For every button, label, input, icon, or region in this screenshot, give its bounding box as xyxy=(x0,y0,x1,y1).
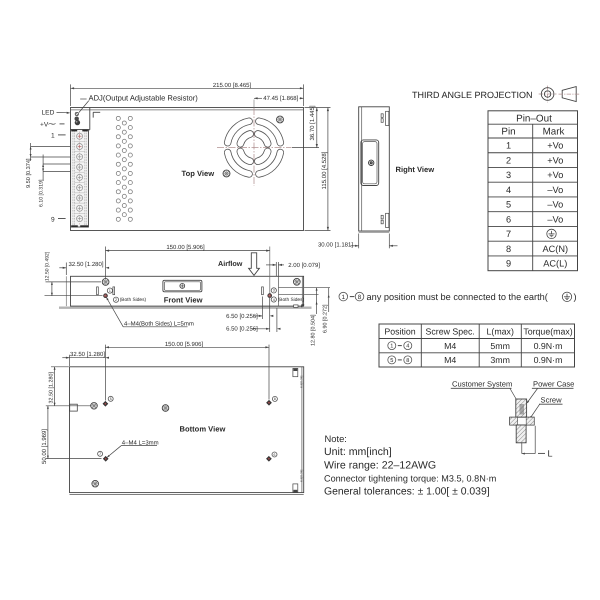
svg-text:6: 6 xyxy=(274,453,276,457)
svg-text:6: 6 xyxy=(506,214,511,224)
svg-text:1: 1 xyxy=(109,289,111,293)
svg-text:6.5[0.26]: 6.5[0.26] xyxy=(300,375,304,388)
svg-text:Customer System: Customer System xyxy=(452,380,512,389)
svg-text:4: 4 xyxy=(406,344,409,350)
svg-text:–Vo: –Vo xyxy=(547,200,563,210)
svg-text:L: L xyxy=(548,449,553,459)
svg-text:9: 9 xyxy=(506,259,511,269)
svg-text:32.50 [1.280]: 32.50 [1.280] xyxy=(70,351,105,358)
svg-text:9.50 [0.374]: 9.50 [0.374] xyxy=(25,158,32,188)
svg-text:+V: +V xyxy=(40,121,49,128)
svg-text:4: 4 xyxy=(506,185,511,195)
svg-text:Pin: Pin xyxy=(501,127,515,138)
svg-text:Screw: Screw xyxy=(541,396,563,405)
svg-text:L(max): L(max) xyxy=(487,327,514,337)
svg-text:THIRD ANGLE PROJECTION: THIRD ANGLE PROJECTION xyxy=(412,90,533,100)
svg-text:50.00 [1.969]: 50.00 [1.969] xyxy=(41,429,48,464)
svg-text:1: 1 xyxy=(342,294,346,301)
svg-text:150.00 [5.906]: 150.00 [5.906] xyxy=(165,341,204,348)
svg-text:2: 2 xyxy=(506,155,511,165)
svg-text:32.50 [1.280]: 32.50 [1.280] xyxy=(49,372,55,404)
svg-text:5: 5 xyxy=(110,397,112,401)
svg-text:47.45 [1.868]: 47.45 [1.868] xyxy=(263,95,298,102)
svg-text:7: 7 xyxy=(99,452,101,456)
svg-text:AC(N): AC(N) xyxy=(543,244,569,254)
svg-text:150.00 [5.906]: 150.00 [5.906] xyxy=(166,244,205,251)
svg-text:115.00 [4.528]: 115.00 [4.528] xyxy=(321,151,328,189)
svg-text:Right View: Right View xyxy=(396,165,435,174)
svg-text:Pin–Out: Pin–Out xyxy=(516,114,552,125)
svg-text:–Vo: –Vo xyxy=(547,185,563,195)
svg-text:8: 8 xyxy=(358,294,362,301)
svg-text:0.9N·m: 0.9N·m xyxy=(534,341,563,351)
svg-text:3: 3 xyxy=(506,170,511,180)
svg-text:8: 8 xyxy=(274,397,276,401)
svg-text:M4: M4 xyxy=(444,355,456,365)
svg-text:4: 4 xyxy=(273,298,275,302)
svg-text:5: 5 xyxy=(506,200,511,210)
svg-text:3mm: 3mm xyxy=(490,355,510,365)
svg-text:1: 1 xyxy=(51,133,55,140)
svg-text:any position must be connected: any position must be connected to the ea… xyxy=(367,292,548,302)
svg-text:ADJ(Output Adjustable Resistor: ADJ(Output Adjustable Resistor) xyxy=(89,93,199,102)
svg-text:Unit: mm[inch]: Unit: mm[inch] xyxy=(324,446,392,458)
svg-text:Front View: Front View xyxy=(164,295,203,304)
svg-text:Connector tightening torque: M: Connector tightening torque: M3.5, 0.8N·… xyxy=(324,474,496,484)
svg-text:36.70 [1.445]: 36.70 [1.445] xyxy=(309,105,316,140)
svg-text:6.90 [0.272]: 6.90 [0.272] xyxy=(323,304,329,333)
svg-text:Power Case: Power Case xyxy=(533,380,574,389)
svg-text:–Vo: –Vo xyxy=(547,214,563,224)
svg-text:Position: Position xyxy=(384,327,415,337)
svg-text:8: 8 xyxy=(506,244,511,254)
svg-text:2: 2 xyxy=(115,298,117,302)
svg-text:Top View: Top View xyxy=(182,169,215,178)
svg-text:Bottom View: Bottom View xyxy=(180,425,226,434)
svg-text:3: 3 xyxy=(273,289,275,293)
svg-text:Airflow: Airflow xyxy=(218,259,243,268)
svg-text:): ) xyxy=(574,292,577,302)
svg-text:6.10 [0.319]: 6.10 [0.319] xyxy=(39,179,45,207)
svg-text:LED: LED xyxy=(42,110,55,117)
svg-text:9: 9 xyxy=(51,217,55,224)
svg-text:30.00 [1.181]: 30.00 [1.181] xyxy=(318,241,353,248)
svg-text:0.9N·m: 0.9N·m xyxy=(534,355,563,365)
svg-text:Note:: Note: xyxy=(325,433,347,444)
svg-text:(Both Sides): (Both Sides) xyxy=(120,297,147,303)
svg-text:+Vo: +Vo xyxy=(547,170,563,180)
svg-text:+Vo: +Vo xyxy=(547,141,563,151)
svg-text:5: 5 xyxy=(390,358,393,364)
svg-text:5mm: 5mm xyxy=(490,341,510,351)
svg-text:6.5[0.26]: 6.5[0.26] xyxy=(300,469,304,482)
svg-text:215.00 [8.465]: 215.00 [8.465] xyxy=(213,82,252,89)
svg-text:2.00 [0.079]: 2.00 [0.079] xyxy=(288,262,320,269)
svg-text:Mark: Mark xyxy=(543,127,565,138)
svg-text:1: 1 xyxy=(506,141,511,151)
svg-text:7: 7 xyxy=(506,229,511,239)
svg-text:Torque(max): Torque(max) xyxy=(523,327,572,337)
svg-text:6.50 [0.256]: 6.50 [0.256] xyxy=(226,313,258,320)
svg-text:Wire range: 22–12AWG: Wire range: 22–12AWG xyxy=(324,459,436,471)
svg-text:(Both Sides): (Both Sides) xyxy=(278,297,305,303)
svg-text:General tolerances: ± 1.00[ ±: General tolerances: ± 1.00[ ± 0.039] xyxy=(324,487,490,498)
svg-text:Screw Spec.: Screw Spec. xyxy=(426,327,475,337)
svg-text:12.80 [0.504]: 12.80 [0.504] xyxy=(310,314,316,346)
svg-text:+Vo: +Vo xyxy=(547,155,563,165)
svg-text:AC(L): AC(L) xyxy=(543,259,567,269)
svg-text:32.50 [1.280]: 32.50 [1.280] xyxy=(68,261,103,268)
svg-text:6.50 [0.256]: 6.50 [0.256] xyxy=(226,326,258,333)
svg-text:1: 1 xyxy=(390,344,393,350)
svg-text:M4: M4 xyxy=(444,341,456,351)
svg-text:12.50 [0.492]: 12.50 [0.492] xyxy=(44,251,50,281)
svg-text:8: 8 xyxy=(406,358,409,364)
